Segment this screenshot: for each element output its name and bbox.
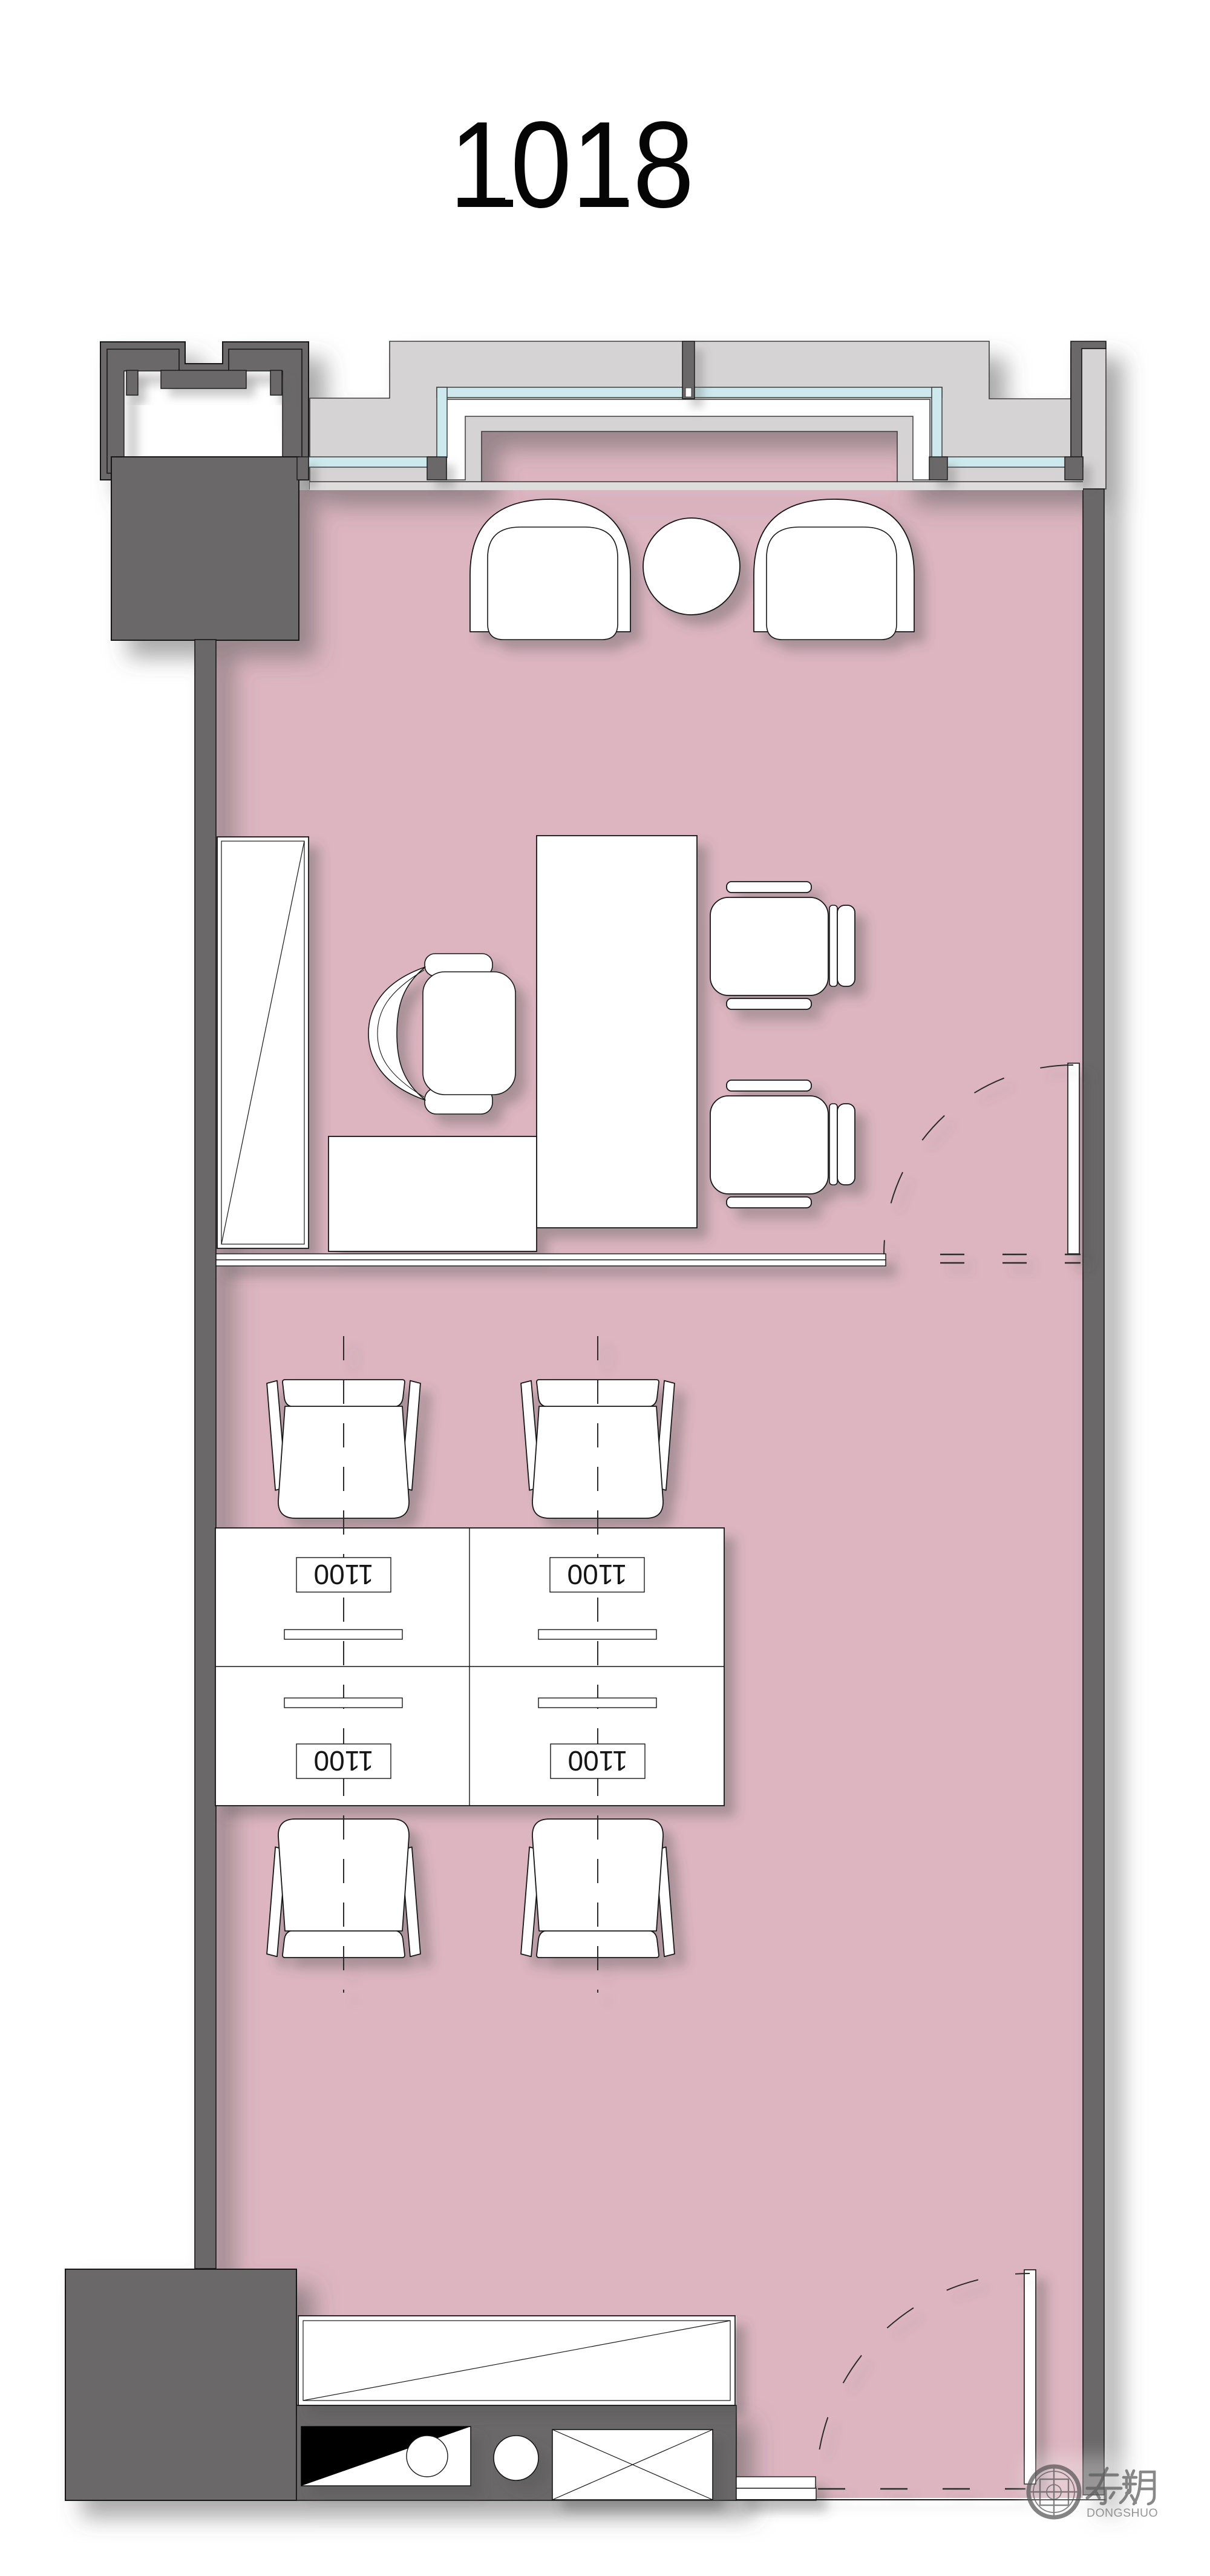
svg-text:DONGSHUO: DONGSHUO: [1087, 2506, 1158, 2520]
svg-text:1100: 1100: [314, 1559, 374, 1590]
svg-text:1100: 1100: [567, 1559, 627, 1590]
svg-text:1100: 1100: [314, 1745, 374, 1777]
svg-text:1100: 1100: [568, 1745, 628, 1777]
svg-text:1018: 1018: [450, 96, 695, 233]
